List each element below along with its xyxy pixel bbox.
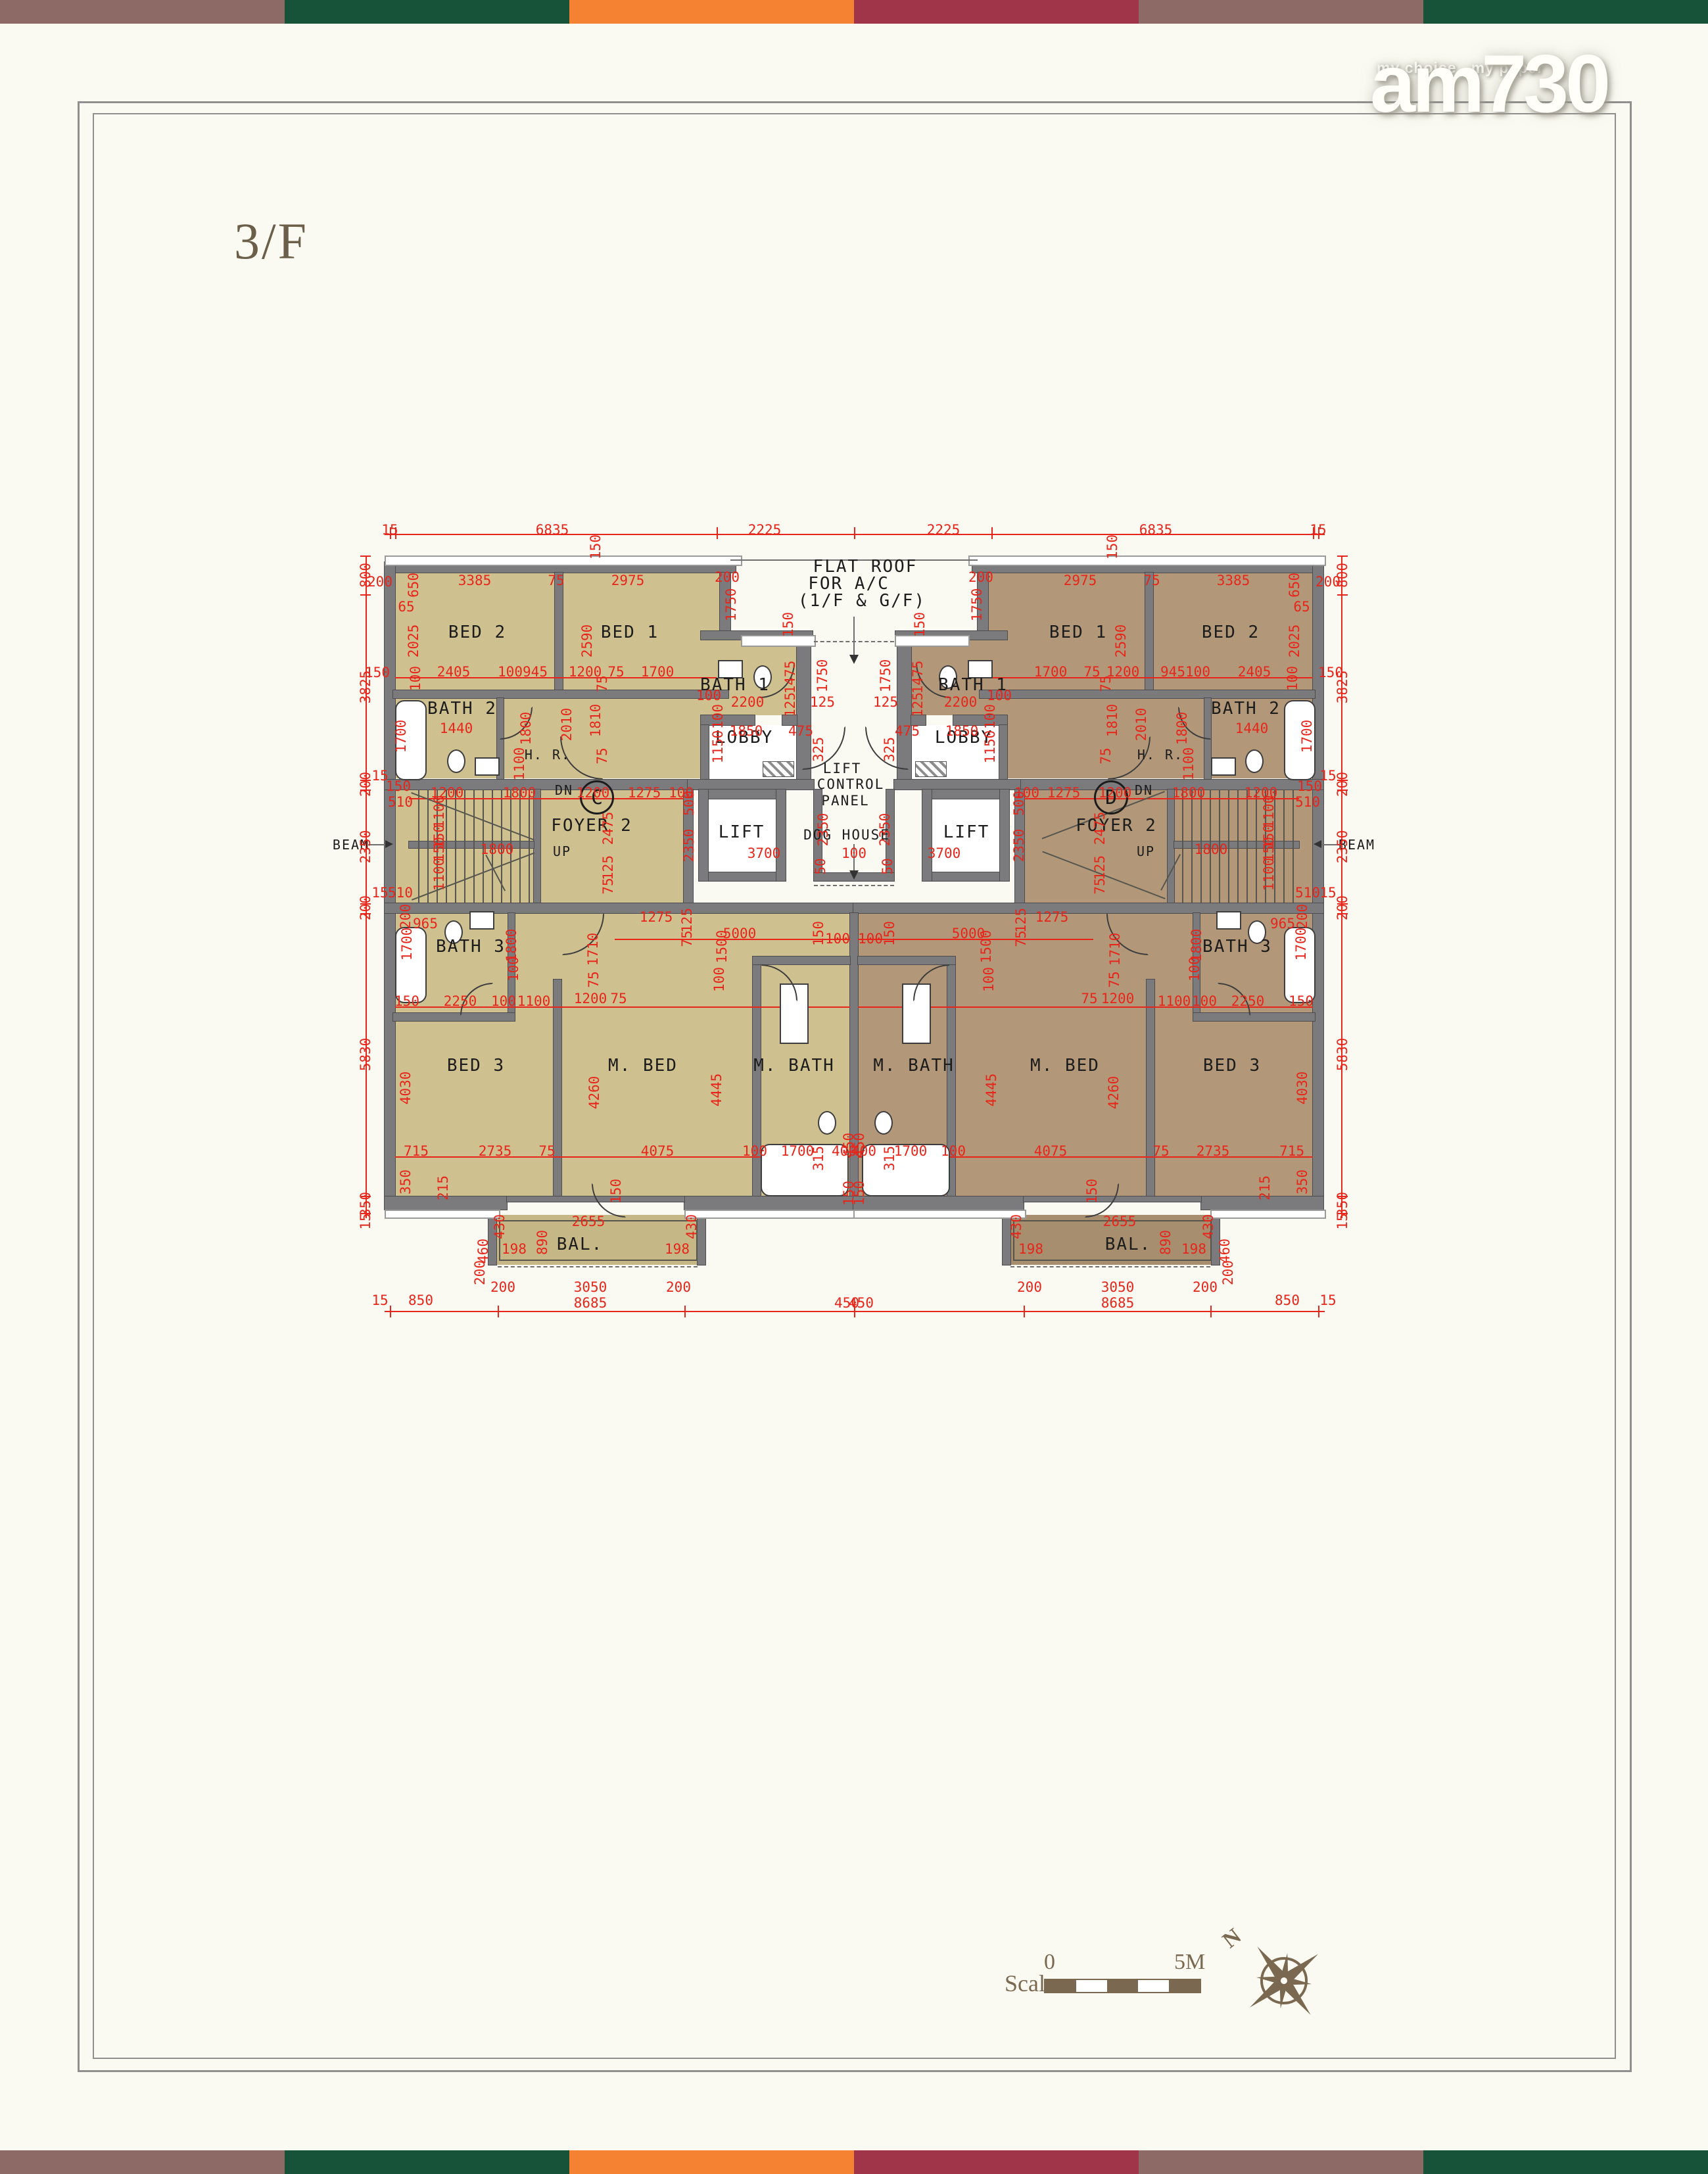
dim-label: 65 [398,599,414,615]
wall [1147,980,1154,1196]
dim-label: 215 [435,1175,451,1200]
room-label: BED 3 [447,1056,505,1075]
room-label: M. BATH [753,1056,835,1075]
dim-label: 500 [681,791,697,816]
flatroof-arrow [853,617,855,655]
dim-label: 1100 [1261,858,1277,891]
dim-label: 1810 [1104,704,1120,738]
dim-label: 200 [1193,1279,1218,1295]
dim-label: 75 [1092,878,1108,894]
dim-label: 125 [1092,855,1108,880]
toilet [874,1111,893,1135]
arrow-head [385,840,393,848]
dim-label: 1100 [1261,795,1277,829]
wall [554,980,561,1196]
dim-label: 4075 [1034,1143,1068,1159]
dim-label: 100 [981,967,997,992]
dim-label: 100 [1187,957,1202,981]
sink [1211,757,1236,776]
scale-bar [1044,1979,1201,1993]
dim-label: 125 [910,692,926,717]
dim-label: 2200 [944,694,978,710]
dim-tick [854,527,855,539]
wall [894,780,1020,790]
dim-label: 6835 [1139,522,1173,538]
dim-label: 1100 [1181,747,1197,781]
dim-label: 1100 [1158,993,1191,1009]
room-label: BED 3 [1203,1056,1261,1075]
dim-label: 1100 [511,747,527,781]
dim-label: 350 [398,1170,414,1194]
wall [1145,573,1153,691]
dim-label: 1440 [440,721,473,736]
dim-label: 850 [408,1292,433,1308]
dim-label: 1275 [1035,909,1069,925]
dim-label: 75 [1152,1143,1169,1159]
room-label: M. BED [608,1056,678,1075]
wall [385,903,855,913]
wall [1000,790,1009,881]
wall [922,790,1009,799]
ac-ledge [895,635,970,647]
staircase [410,790,534,903]
dim-label: 2975 [1064,573,1097,588]
dim-label: 800 [358,563,373,588]
room-label: FOYER 2 [551,816,632,836]
room-label: BED 2 [1202,623,1260,642]
wall [853,903,1323,913]
dim-label: 3385 [1217,573,1250,588]
dim-label: 5830 [1335,1038,1350,1072]
color-stripe [854,2150,1139,2174]
room-label: M. BATH [873,1056,955,1075]
dim-label: 1150 [710,730,726,764]
dim-label: 75 [1081,991,1097,1006]
dashed-line [814,885,894,886]
dim-tick [360,594,371,596]
dim-label: 1850 [730,723,763,739]
room-label: M. BED [1030,1056,1100,1075]
dim-label: 125 [782,692,798,717]
dim-label: 198 [1018,1241,1043,1257]
dim-label: 15 [358,1213,373,1229]
dim-label: 1275 [628,785,661,801]
dim-label: 1810 [588,704,604,738]
staircase [1174,790,1298,903]
dim-label: 1700 [641,664,675,680]
dim-label: 1100 [431,795,447,829]
dim-label: 1100 [431,858,447,891]
dim-label: 198 [502,1241,527,1257]
dim-tick [684,1306,686,1317]
dim-label: 475 [788,723,813,739]
dim-label: 150 [608,1179,624,1204]
dim-label: 510 [388,794,413,810]
dim-label: 100 [1285,666,1300,691]
wall [1193,1013,1315,1021]
dim-label: 3825 [358,671,373,704]
dim-label: 200 [472,1260,488,1285]
dim-label: 150 [1104,534,1120,559]
dim-label: 100 [987,688,1012,703]
dim-label: 100 [711,967,727,992]
dim-label: 150 [851,1181,867,1206]
dim-line [1341,555,1342,1218]
dim-label: 100 [825,931,850,947]
dim-label: 75 [1143,573,1160,588]
room-label: BAL. [1105,1235,1152,1254]
dim-label: 100 [506,957,521,981]
sink [475,757,500,776]
dim-label: 100 [491,993,516,1009]
dim-label: 200 [1294,904,1310,929]
dim-label: 4030 [398,1072,414,1105]
balcony-dashed [1010,1266,1210,1267]
scale-max: 5M [1174,1950,1205,1975]
dim-label: 2590 [1113,625,1129,658]
toilet [1245,749,1264,773]
dim-label: 2735 [1197,1143,1230,1159]
color-stripe [0,0,285,24]
dim-label: 100 [710,704,726,729]
dim-label: 75 [600,878,616,894]
dim-label: 150 [588,534,604,559]
dim-label: 2250 [444,993,477,1009]
ac-ledge [741,635,816,647]
dim-label: 650 [1287,573,1302,598]
room-label: BAL. [557,1235,604,1254]
dim-label: 125 [873,694,898,710]
dim-label: 75 [607,664,624,680]
dim-label: 215 [1257,1175,1273,1200]
dim-label: 2200 [731,694,765,710]
dim-label: 15 [1319,768,1336,784]
dim-label: 1100 [517,993,551,1009]
color-stripe [1423,0,1708,24]
dim-label: 50 [813,858,828,874]
dim-label: 2350 [358,830,373,864]
dim-tick [1210,1306,1212,1317]
arrow-head [1314,840,1321,848]
dim-label: 50 [880,858,895,874]
dim-label: 125 [810,694,835,710]
dim-label: 200 [968,569,993,585]
dim-label: 1200 [574,991,607,1006]
wall [699,790,708,881]
wall [688,780,814,790]
color-stripe [1139,0,1423,24]
dim-label: 850 [1275,1292,1300,1308]
dim-label: 1700 [894,1143,928,1159]
dim-label: 510 [1295,794,1320,810]
exterior-ledge [385,1210,500,1219]
room-label: BATH 2 [1211,699,1281,719]
color-stripe [1139,2150,1423,2174]
dim-label: 315 [811,1146,826,1171]
arrow-head [849,655,859,664]
center-label: (1/F & G/F) [798,591,926,611]
dim-label: 1750 [723,588,739,622]
center-label: PANEL [821,793,869,809]
color-stripe [1423,2150,1708,2174]
room-label: LIFT [943,822,990,842]
dim-label: 325 [811,737,826,762]
dim-label: 1700 [393,720,409,753]
wall [980,690,1315,698]
dim-label: 1200 [1101,991,1135,1006]
dim-label: 6835 [536,522,569,538]
wall [850,913,858,1210]
room-label: H. R. [525,747,571,763]
dim-label: 1475 [782,661,798,694]
exterior-ledge [853,1210,1026,1219]
dim-label: 100 [842,845,866,861]
wall [922,872,1009,881]
dim-label: 2405 [1238,664,1271,680]
dim-label: 2405 [437,664,471,680]
wall [393,690,728,698]
dim-label: 75 [594,747,610,764]
dim-label: 3700 [928,845,961,861]
dim-label: 1800 [481,841,514,857]
dim-label: 315 [882,1146,897,1171]
dim-label: 100 [1192,993,1217,1009]
dim-label: 200 [715,569,740,585]
dim-label: 15 [371,1292,388,1308]
dim-label: 200 [1220,1260,1236,1285]
dim-label: 1750 [878,659,893,693]
room-label: UP [553,843,571,859]
dim-label: 200 [1335,895,1350,920]
dim-label: 1500 [714,930,730,964]
dim-label: 510 [1295,885,1320,901]
dim-tick [717,527,718,539]
dim-label: 2350 [815,813,831,847]
arrow-head [849,870,859,880]
dim-label: 945 [523,664,548,680]
dim-label: 3825 [1335,671,1350,704]
scale-zero: 0 [1044,1950,1055,1975]
dim-label: 1150 [982,730,998,764]
dim-label: 198 [665,1241,690,1257]
wall [853,1196,1024,1210]
dim-label: 100 [498,664,523,680]
dim-label: 4445 [709,1074,724,1107]
wall [1168,790,1174,903]
dim-label: 200 [1017,1279,1042,1295]
dim-label: 2225 [748,522,782,538]
dim-label: 500 [1011,791,1027,816]
dim-label: 75 [679,930,695,947]
dim-label: 200 [666,1279,691,1295]
dim-label: 2475 [600,812,616,845]
toilet [818,1111,836,1135]
dim-label: 75 [538,1143,555,1159]
dim-label: 2010 [559,708,575,742]
dim-label: 198 [1181,1241,1206,1257]
dim-label: 4260 [586,1076,602,1110]
dim-label: 2655 [1103,1214,1137,1229]
dim-label: 1750 [815,659,830,693]
dim-label: 75 [1098,747,1114,764]
dim-label: 2350 [681,829,697,863]
dim-label: 100 [1185,664,1210,680]
dim-label: 965 [1270,916,1295,932]
dim-label: 1710 [585,933,601,966]
dim-label: 1275 [640,909,673,925]
dim-label: 125 [1013,908,1029,933]
dim-label: 2590 [579,625,595,658]
dim-label: 1440 [1235,721,1269,736]
dim-label: 100 [858,931,883,947]
dim-label: 2010 [1133,708,1149,742]
room-label: BED 1 [601,623,659,642]
dim-tick [498,1306,499,1317]
dim-label: 15 [371,885,388,901]
dim-label: 2025 [406,625,421,658]
dim-label: 150 [811,921,826,946]
newspaper-floorplan-page: { "page": { "floor_title": "3/F" }, "log… [0,0,1708,2174]
dim-label: 1850 [945,723,979,739]
dim-label: 1200 [577,785,610,801]
dim-label: 715 [404,1143,429,1159]
dim-label: 2225 [927,522,961,538]
wall [393,1013,515,1021]
room-label: LIFT [719,822,765,842]
sink [1216,911,1241,930]
dim-label: 1700 [781,1143,815,1159]
wall [999,725,1007,780]
scale-segment [1045,1980,1076,1992]
dim-label: 2350 [1335,830,1350,864]
room-label: BATH 3 [436,937,506,957]
dim-label: 890 [1158,1230,1174,1255]
dim-label: 75 [1106,971,1122,987]
dim-label: 450 [849,1295,874,1311]
room-label: BED 1 [1049,623,1107,642]
exterior-ledge [684,1210,857,1219]
dim-label: 15 [1310,522,1326,538]
hatch-edge [763,761,794,777]
wall [699,790,786,799]
dim-label: 2250 [1231,993,1265,1009]
dim-label: 150 [912,612,928,637]
dim-label: 2975 [611,573,645,588]
dim-label: 3050 [1101,1279,1135,1295]
dim-tick [390,1306,391,1317]
dim-label: 1275 [1047,785,1081,801]
color-stripe [0,2150,285,2174]
dim-label: 100 [941,1143,966,1159]
center-label: CONTROL [817,776,885,792]
dim-label: 75 [594,675,610,692]
dim-label: 65 [1293,599,1310,615]
scale-segment [1169,1980,1200,1992]
room-label: H. R. [1137,747,1183,763]
scale-segment [1138,1980,1169,1992]
dim-label: 965 [413,916,438,932]
color-stripe [285,0,569,24]
dim-label: 325 [882,737,897,762]
wall [753,957,850,964]
room-label: BATH 2 [427,699,497,719]
sink [469,911,494,930]
dim-label: 100 [696,688,721,703]
wall [699,872,786,881]
dim-label: 75 [548,573,564,588]
room-label: DN [1135,782,1153,798]
wall [753,964,761,1196]
dim-label: 1700 [1293,928,1309,961]
dim-label: 3050 [574,1279,607,1295]
dim-label: 3700 [747,845,781,861]
dim-label: 2025 [1287,625,1302,658]
dim-tick [360,555,371,557]
dim-label: 2475 [1092,812,1108,845]
dim-label: 650 [406,573,421,598]
dim-label: 8685 [1101,1295,1135,1311]
dim-label: 1710 [1107,933,1123,966]
dim-label: 1475 [910,661,926,694]
dim-label: 800 [1335,563,1350,588]
dim-label: 2350 [877,813,893,847]
dim-label: 100 [408,666,423,691]
color-stripe [854,0,1139,24]
dim-label: 430 [492,1214,508,1239]
exterior-ledge [968,555,1326,566]
dim-label: 1700 [1034,664,1068,680]
dim-label: 1800 [518,712,534,745]
dim-label: 150 [780,612,796,637]
dim-label: 125 [600,855,616,880]
room-label: BED 2 [448,623,506,642]
dim-label: 200 [398,904,414,929]
scale-segment [1076,1980,1107,1992]
dim-label: 100 [982,704,998,729]
wall [922,790,932,881]
dim-label: 200 [1335,772,1350,797]
dim-label: 890 [534,1230,550,1255]
dim-label: 75 [586,971,602,987]
dim-label: 1500 [978,930,994,964]
toilet [447,749,465,773]
dim-label: 4260 [1106,1076,1122,1110]
color-stripe [285,2150,569,2174]
dim-label: 150 [1084,1179,1100,1204]
room-label: DN [555,782,573,798]
dim-label: 715 [1279,1143,1304,1159]
dim-label: 8685 [574,1295,607,1311]
scale-segment [1107,1980,1138,1992]
dim-label: 200 [490,1279,515,1295]
dim-label: 510 [388,885,413,901]
dim-label: 1700 [399,928,415,961]
dim-label: 2350 [1011,829,1027,863]
dim-label: 4030 [1294,1072,1310,1105]
dim-label: 15 [381,522,398,538]
dim-label: 15 [1319,885,1336,901]
dim-label: 2655 [572,1214,605,1229]
dim-label: 100 [742,1143,767,1159]
dim-line [366,555,367,1218]
wall [776,790,786,881]
room-label: UP [1137,843,1155,859]
dim-label: 1800 [503,785,536,801]
dim-label: 5830 [358,1038,373,1072]
dim-tick [1024,1306,1025,1317]
dim-label: 75 [610,991,627,1006]
dim-label: 1800 [1195,841,1228,857]
